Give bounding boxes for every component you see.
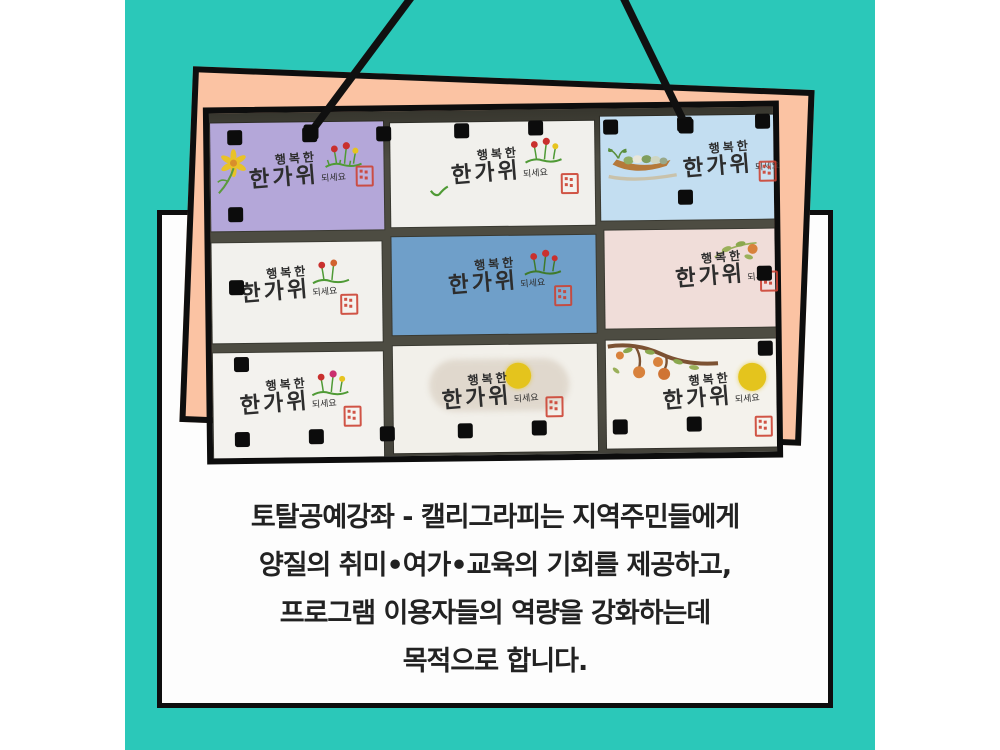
calligraphy-card-r2c2: 행복한 한가위되세요	[391, 235, 596, 335]
caption-line-4: 목적으로 합니다.	[162, 638, 828, 686]
sprout-icon	[429, 185, 449, 199]
greeting-calligraphy: 행복한 한가위되세요	[661, 369, 760, 412]
tulip-icon	[522, 137, 564, 168]
calligraphy-card-r3c3: 행복한 한가위되세요	[606, 339, 777, 449]
seal-stamp-icon	[554, 285, 572, 306]
magnet-dot	[686, 416, 701, 431]
magnet-dot	[228, 280, 243, 295]
magnet-dot	[234, 431, 249, 446]
magnet-dot	[302, 127, 317, 142]
caption-line-3: 프로그램 이용자들의 역량을 강화하는데	[162, 590, 828, 638]
magnet-dot	[612, 419, 627, 434]
seal-stamp-icon	[759, 161, 777, 182]
seal-stamp-icon	[356, 165, 374, 186]
poster-canvas: 토탈공예강좌 - 캘리그라피는 지역주민들에게 양질의 취미•여가•교육의 기회…	[0, 0, 1000, 750]
photo-frame: 행복한 한가위되세요 행복한 한가위되세요	[203, 100, 783, 464]
fruit-boat-icon	[604, 146, 688, 187]
magnet-dot	[677, 189, 692, 204]
magnet-dot	[603, 119, 618, 134]
calligraphy-card-r1c2: 행복한 한가위되세요	[390, 121, 595, 227]
tulip-icon	[522, 249, 564, 280]
magnet-dot	[754, 113, 769, 128]
magnet-dot	[757, 340, 772, 355]
calligraphy-card-r3c2: 행복한 한가위되세요	[393, 344, 598, 453]
magnet-dot	[233, 356, 248, 371]
magnet-dot	[227, 130, 242, 145]
magnet-dot	[457, 423, 472, 438]
caption-line-1: 토탈공예강좌 - 캘리그라피는 지역주민들에게	[162, 494, 828, 542]
caption-line-2: 양질의 취미•여가•교육의 기회를 제공하고,	[162, 542, 828, 590]
tulip-icon	[310, 258, 352, 289]
magnet-dot	[531, 420, 546, 435]
caption-text-block: 토탈공예강좌 - 캘리그라피는 지역주민들에게 양질의 취미•여가•교육의 기회…	[162, 494, 828, 686]
seal-stamp-icon	[545, 396, 563, 417]
tulip-icon	[309, 370, 351, 401]
seal-stamp-icon	[343, 406, 361, 427]
magnet-dot	[379, 426, 394, 441]
calligraphy-card-r2c3: 행복한 한가위되세요	[604, 229, 775, 329]
magnet-dot	[528, 120, 543, 135]
seal-stamp-icon	[755, 416, 773, 437]
magnet-dot	[308, 429, 323, 444]
magnet-dot	[756, 265, 771, 280]
magnet-dot	[228, 207, 243, 222]
magnet-dot	[676, 116, 691, 131]
seal-stamp-icon	[561, 173, 579, 194]
magnet-dot	[376, 126, 391, 141]
magnet-dot	[454, 123, 469, 138]
seal-stamp-icon	[340, 294, 358, 315]
